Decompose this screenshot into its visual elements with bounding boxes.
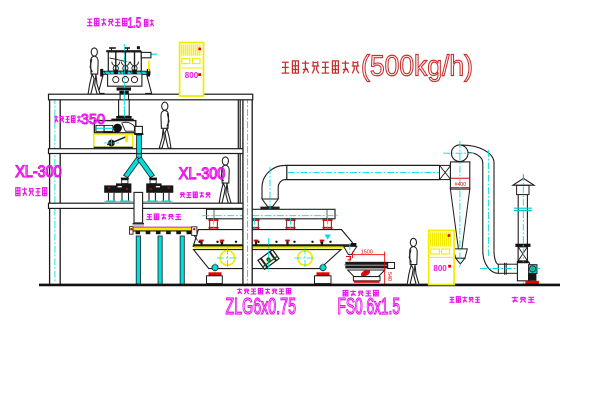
svg-text:1500: 1500 [361, 250, 373, 256]
svg-text:ZLG6x0.75: ZLG6x0.75 [226, 293, 297, 319]
svg-text:1.5: 1.5 [128, 16, 142, 32]
svg-text:XL-300: XL-300 [15, 162, 62, 181]
svg-text:#400: #400 [455, 182, 467, 188]
svg-text:350: 350 [81, 112, 105, 128]
svg-text:FS0.6x1.5: FS0.6x1.5 [338, 293, 401, 319]
svg-text:540: 540 [386, 272, 392, 281]
svg-text:(500kg/h): (500kg/h) [361, 51, 473, 83]
svg-text:800: 800 [433, 264, 447, 273]
svg-text:XL-300: XL-300 [179, 164, 226, 183]
svg-text:800: 800 [185, 71, 199, 80]
